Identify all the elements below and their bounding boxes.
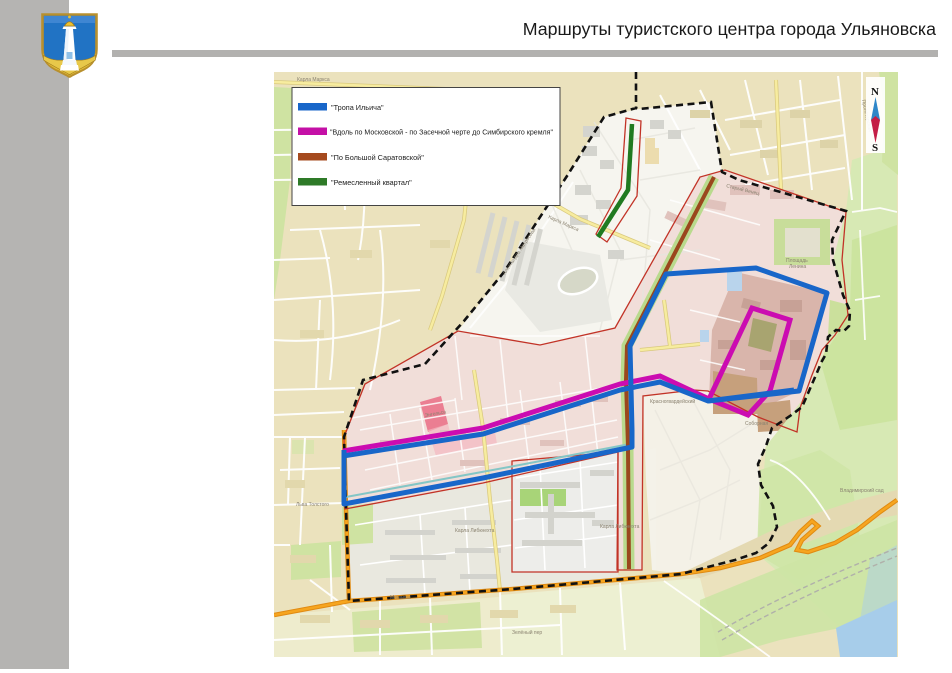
- svg-text:Владимирский сад: Владимирский сад: [840, 487, 884, 494]
- svg-text:"Тропа Ильича": "Тропа Ильича": [331, 103, 384, 112]
- svg-text:Льва Толстого: Льва Толстого: [296, 502, 329, 508]
- svg-text:S: S: [872, 142, 878, 154]
- svg-text:Карла Либкнехта: Карла Либкнехта: [600, 524, 640, 530]
- svg-text:Соборная: Соборная: [745, 421, 768, 427]
- svg-text:N: N: [871, 86, 879, 98]
- svg-text:Карла Маркса: Карла Маркса: [297, 77, 330, 83]
- svg-text:Минаева: Минаева: [390, 595, 411, 601]
- svg-text:"Ремесленный квартал": "Ремесленный квартал": [331, 178, 412, 187]
- svg-text:Ленина: Ленина: [789, 264, 806, 270]
- svg-text:"Вдоль по Московской - по Засе: "Вдоль по Московской - по Засечной черте…: [330, 129, 553, 137]
- svg-text:Красногвардейский: Красногвардейский: [650, 398, 695, 405]
- svg-text:"По Большой Саратовской": "По Большой Саратовской": [331, 153, 424, 162]
- svg-text:Зелёный пер: Зелёный пер: [512, 629, 542, 636]
- svg-text:Карла Либкнехта: Карла Либкнехта: [455, 528, 495, 534]
